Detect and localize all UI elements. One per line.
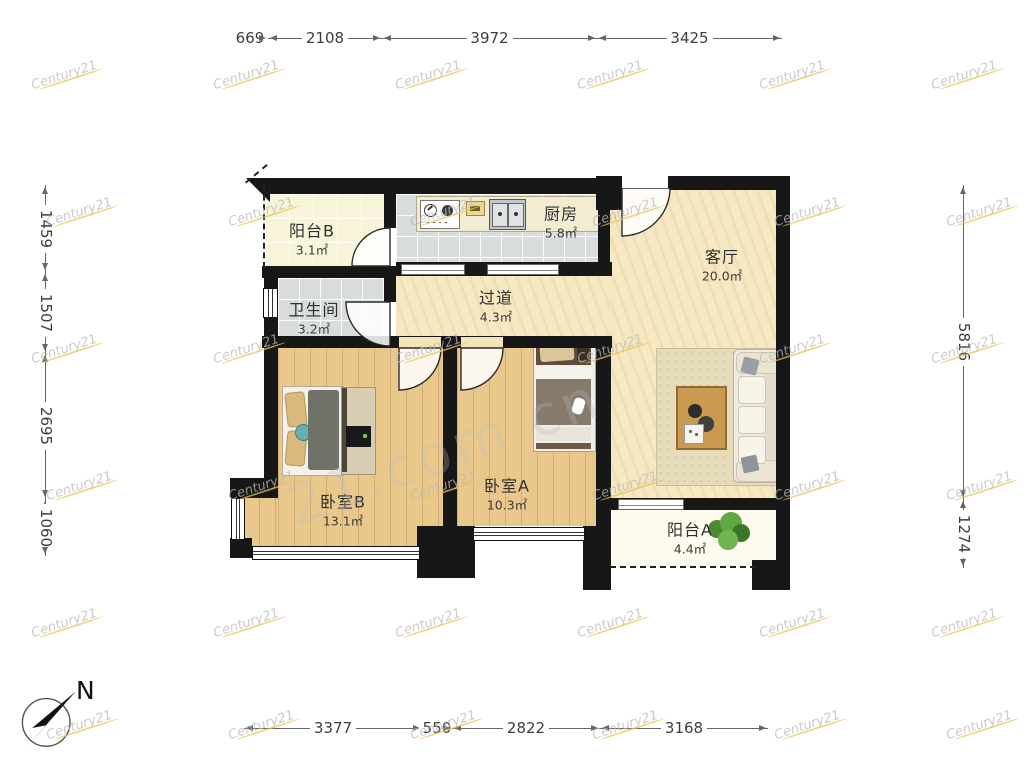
wall <box>583 526 597 590</box>
wall <box>384 194 396 228</box>
room-label-bedroom-a: 卧室A10.3㎡ <box>484 476 530 513</box>
dimension-left-0: 1459 <box>45 185 46 272</box>
wall <box>230 478 278 498</box>
watermark-logo: Century21 <box>758 606 827 640</box>
wall <box>776 176 790 590</box>
watermark-logo: Century21 <box>30 606 99 640</box>
dimension-bottom-0: 3377 <box>244 728 422 729</box>
wall <box>246 178 270 202</box>
compass-north-label: N <box>76 676 95 705</box>
sofa-icon <box>733 349 782 483</box>
wall <box>752 560 790 590</box>
watermark-logo: Century21 <box>45 469 114 503</box>
dimension-top-2: 3972 <box>382 38 597 39</box>
watermark-logo: Century21 <box>227 708 296 742</box>
bedroom-a-window <box>473 527 585 541</box>
kitchen-sliding-door <box>401 264 465 275</box>
wall <box>264 278 278 288</box>
balcony-a-sliding-door <box>618 499 684 510</box>
stove-icon <box>420 200 460 229</box>
wardrobe-icon <box>341 387 376 475</box>
balcony-b-open-edge <box>263 185 265 268</box>
potted-plant-icon <box>708 512 752 556</box>
room-label-kitchen: 厨房5.8㎡ <box>544 204 578 241</box>
room-label-hallway: 过道4.3㎡ <box>479 288 513 325</box>
room-label-bathroom: 卫生间3.2㎡ <box>288 300 339 337</box>
dimension-bottom-2: 2822 <box>452 728 600 729</box>
watermark-logo: Century21 <box>394 58 463 92</box>
entrance-door <box>620 188 672 240</box>
dimension-right-0: 5816 <box>963 185 964 499</box>
dimension-top-0: 669 <box>232 38 268 39</box>
wall <box>598 194 610 262</box>
wall <box>443 336 457 526</box>
wall <box>668 176 790 190</box>
watermark-logo: Century21 <box>212 606 281 640</box>
sink-icon <box>489 199 526 230</box>
floor-plan-canvas: 阳台B3.1㎡ 厨房5.8㎡ 客厅20.0㎡ 卫生间3.2㎡ 过道4.3㎡ 卧室… <box>0 0 1024 768</box>
dimension-bottom-3: 3168 <box>600 728 768 729</box>
room-label-bedroom-b: 卧室B13.1㎡ <box>320 492 366 529</box>
double-bed-icon <box>282 386 344 476</box>
dimension-top-1: 2108 <box>268 38 382 39</box>
room-label-living-room: 客厅20.0㎡ <box>702 247 742 284</box>
watermark-logo: Century21 <box>945 708 1014 742</box>
kitchen-appliance-icon <box>466 201 485 216</box>
bedroom-b-side-window <box>231 498 245 540</box>
watermark-logo: Century21 <box>945 195 1014 229</box>
wall <box>264 348 278 478</box>
balcony-b-door <box>350 226 392 268</box>
watermark-logo: Century21 <box>945 469 1014 503</box>
compass-icon <box>14 686 84 756</box>
dimension-right-1: 1274 <box>963 499 964 568</box>
dimension-left-2: 2695 <box>45 353 46 499</box>
kitchen-sliding-door <box>487 264 559 275</box>
watermark-logo: Century21 <box>773 708 842 742</box>
wall <box>384 266 396 302</box>
bedroom-b-door <box>397 346 443 392</box>
wall <box>417 526 475 578</box>
coffee-table-icon <box>676 386 727 450</box>
dimension-top-3: 3425 <box>597 38 782 39</box>
balcony-a-open-edge <box>610 566 756 568</box>
wall <box>230 538 252 558</box>
dimension-left-1: 1507 <box>45 272 46 353</box>
room-label-balcony-b: 阳台B3.1㎡ <box>289 221 335 258</box>
dimension-left-3: 1060 <box>45 499 46 556</box>
wall <box>596 336 611 590</box>
dimension-bottom-1: 550 <box>422 728 452 729</box>
watermark-logo: Century21 <box>758 58 827 92</box>
watermark-logo: Century21 <box>930 58 999 92</box>
watermark-logo: Century21 <box>576 606 645 640</box>
bedroom-a-door <box>459 346 505 392</box>
watermark-logo: Century21 <box>930 606 999 640</box>
watermark-logo: Century21 <box>30 332 99 366</box>
tv-icon <box>346 426 371 447</box>
room-label-balcony-a: 阳台A4.4㎡ <box>667 520 713 557</box>
bedroom-b-window <box>252 546 420 560</box>
watermark-logo: Century21 <box>394 606 463 640</box>
wall <box>268 178 610 194</box>
watermark-logo: Century21 <box>576 58 645 92</box>
watermark-logo: Century21 <box>30 58 99 92</box>
single-bed-icon <box>533 338 596 452</box>
bathroom-door <box>344 300 392 348</box>
bathroom-window <box>263 288 278 318</box>
watermark-logo: Century21 <box>212 58 281 92</box>
